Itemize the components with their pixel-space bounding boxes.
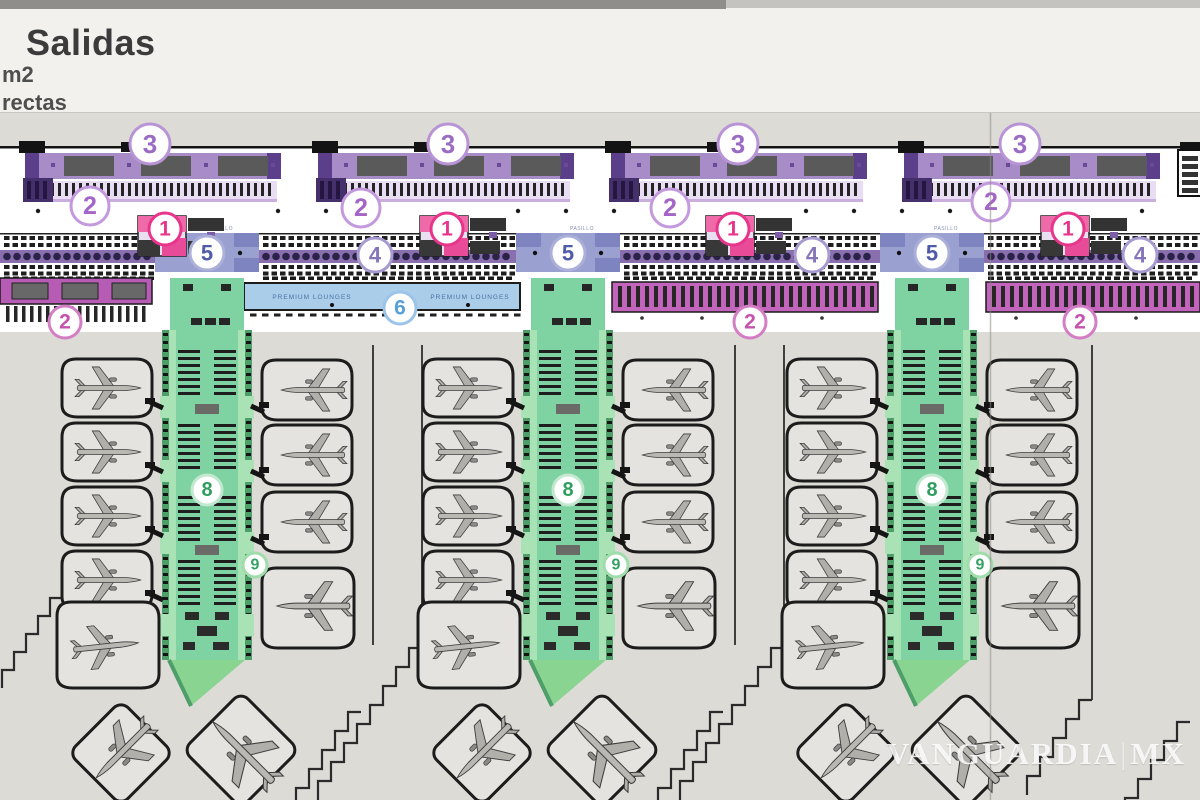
pier-edge-rung: [888, 581, 893, 584]
pier-counter: [940, 612, 954, 620]
pier-seat-row: [178, 517, 200, 520]
seat-row-mark: [658, 236, 664, 240]
queue-divider: [435, 183, 438, 196]
seat-row-mark: [1005, 243, 1011, 247]
seat-row-mark: [675, 243, 681, 247]
queue-divider: [958, 183, 961, 196]
pier-edge-rung: [971, 597, 976, 600]
seat-row-mark: [1167, 243, 1173, 247]
seat-row-mark: [658, 243, 664, 247]
zone-number-1: 1: [727, 218, 739, 241]
seat-row-mark: [735, 272, 741, 276]
seat-row-mark: [1073, 272, 1079, 276]
watermark-suffix: MX: [1130, 736, 1186, 771]
seating-base-dash: [1132, 277, 1138, 281]
pier-seat-row: [939, 588, 961, 591]
seating-column-dot: [863, 253, 871, 261]
pier-edge-rung: [607, 605, 612, 608]
lounge-wall-dash: [298, 314, 305, 317]
pier-seat-row: [575, 438, 597, 441]
pier-top-mark: [544, 284, 554, 291]
seating-base-dash: [867, 277, 873, 281]
seat-row-mark: [1005, 236, 1011, 240]
pier-seat-row: [539, 595, 561, 598]
seat-row-mark: [871, 243, 877, 247]
corridor-block: [959, 258, 984, 272]
checkin-divider-dot: [1006, 163, 1010, 167]
queue-divider: [693, 183, 696, 196]
queue-divider: [1112, 183, 1115, 196]
seat-row-mark: [726, 272, 732, 276]
pier-edge-rung: [888, 565, 893, 568]
seat-row-mark: [115, 272, 121, 276]
seat-row-mark: [1167, 265, 1173, 269]
seat-row-mark: [684, 265, 690, 269]
seat-row-mark: [633, 243, 639, 247]
pier-seat-row: [214, 452, 236, 455]
pier-seat-row: [214, 581, 236, 584]
zone-marker-2: 2: [71, 187, 109, 225]
seat-row-mark: [871, 265, 877, 269]
pier-top-mark: [944, 318, 955, 325]
seat-row-mark: [675, 236, 681, 240]
watermark-main: VANGUARDIA: [887, 736, 1118, 771]
lounge-wall-dash: [502, 314, 509, 317]
boarding-divider: [1100, 286, 1104, 307]
queue-divider: [1070, 183, 1073, 196]
checkin-sign-stripe: [35, 181, 39, 199]
seat-row-mark: [98, 265, 104, 269]
pier-edge-rung: [971, 421, 976, 424]
seat-row-mark: [760, 265, 766, 269]
seat-row-mark: [123, 265, 129, 269]
seating-column-dot: [103, 253, 111, 261]
seat-row-mark: [997, 243, 1003, 247]
checkin-divider-dot: [271, 163, 275, 167]
pier-seat-row: [178, 378, 200, 381]
pier-edge-rung: [888, 637, 893, 640]
boarding-divider: [1037, 286, 1041, 307]
zone-number-2: 2: [744, 311, 756, 334]
pier-edge-rung: [971, 605, 976, 608]
seat-row-mark: [408, 243, 414, 247]
corridor-block: [880, 233, 905, 247]
seat-row-mark: [132, 236, 138, 240]
queue-divider: [812, 183, 815, 196]
seat-row-mark: [399, 236, 405, 240]
seat-row-mark: [289, 243, 295, 247]
pier-edge-rung: [971, 637, 976, 640]
queue-divider: [763, 183, 766, 196]
pier-top-mark: [219, 318, 230, 325]
seat-row-mark: [115, 236, 121, 240]
pier-counter: [576, 612, 590, 620]
pier-seat-row: [903, 445, 925, 448]
pier-edge-rung: [971, 341, 976, 344]
pier-edge-rung: [888, 437, 893, 440]
seat-row-mark: [786, 272, 792, 276]
seat-row-mark: [21, 243, 27, 247]
seating-base-dash: [858, 277, 864, 281]
pier-seat-row: [214, 438, 236, 441]
pier-seat-row: [939, 503, 961, 506]
seat-row-mark: [692, 243, 698, 247]
seat-row-mark: [1090, 272, 1096, 276]
pier-edge-rung: [607, 581, 612, 584]
seat-row-mark: [416, 265, 422, 269]
zone-marker-3: 3: [428, 124, 468, 164]
zone-marker-5: 5: [190, 236, 224, 270]
seating-base-dash: [488, 277, 494, 281]
pier-light-strip: [238, 330, 245, 660]
queue-divider: [651, 183, 654, 196]
seat-row-mark: [650, 236, 656, 240]
seat-row-mark: [399, 265, 405, 269]
queue-divider: [135, 183, 138, 196]
seat-row-mark: [701, 236, 707, 240]
pier-edge-rung: [246, 381, 251, 384]
zone-number-6: 6: [394, 297, 406, 320]
seat-row-mark: [1022, 272, 1028, 276]
checkin-sign-stripe: [613, 181, 617, 199]
pier-edge-rung: [163, 573, 168, 576]
queue-divider: [819, 183, 822, 196]
seat-row-mark: [1192, 272, 1198, 276]
lounge-wall-dash: [478, 314, 485, 317]
boarding-dot: [1014, 316, 1018, 320]
seat-row-mark: [81, 272, 87, 276]
pier-edge-rung: [246, 365, 251, 368]
zone-marker-1: 1: [1052, 213, 1084, 245]
pier-seat-row: [214, 538, 236, 541]
seating-column-dot: [262, 253, 270, 261]
pier-seat-row: [903, 357, 925, 360]
seat-row-mark: [433, 265, 439, 269]
pier-edge-rung: [971, 653, 976, 656]
boarding-divider: [1064, 286, 1068, 307]
seat-row-mark: [115, 243, 121, 247]
checkin-divider-dot: [930, 163, 934, 167]
seat-row-mark: [641, 236, 647, 240]
pier-edge-rung: [888, 605, 893, 608]
seat-row-mark: [357, 236, 363, 240]
jet-bridge-cab: [620, 467, 630, 473]
pier-edge-rung: [888, 357, 893, 360]
corridor-block: [595, 258, 620, 272]
lounge-wall-dash: [490, 314, 497, 317]
boarding-dot: [640, 316, 644, 320]
pier-seat-row: [903, 538, 925, 541]
pier-seat-row: [539, 364, 561, 367]
checkin-divider-dot: [790, 163, 794, 167]
boarding-divider: [1010, 286, 1014, 307]
pier-edge-rung: [524, 373, 529, 376]
seat-row-mark: [55, 236, 61, 240]
pier-edge-rung: [607, 653, 612, 656]
kiosk-lane: [756, 218, 792, 231]
queue-divider: [944, 183, 947, 196]
pier-counter: [213, 642, 229, 650]
queue-divider: [554, 183, 557, 196]
lounge-wall-dash: [442, 314, 449, 317]
queue-divider: [386, 183, 389, 196]
pier-seat-row: [939, 385, 961, 388]
seating-column-dot: [402, 253, 410, 261]
pier-edge-rung: [971, 349, 976, 352]
pier-edge-rung: [524, 501, 529, 504]
kiosk-lane: [470, 218, 506, 231]
seating-base-dash: [669, 277, 675, 281]
pier-edge-rung: [888, 349, 893, 352]
pier-seat-row: [903, 524, 925, 527]
seating-column-dot: [997, 253, 1005, 261]
pier-edge-rung: [888, 525, 893, 528]
pier-seat-row: [178, 574, 200, 577]
column-dot: [948, 209, 952, 213]
zone-number-8: 8: [926, 479, 937, 501]
boarding-divider: [663, 286, 667, 307]
queue-divider: [456, 183, 459, 196]
pier-edge-rung: [246, 645, 251, 648]
lounge-wall-dash: [514, 314, 521, 317]
seating-base-dash: [461, 277, 467, 281]
checkin-endcap: [318, 153, 332, 179]
pier-top-mark: [916, 318, 927, 325]
pier-edge-rung: [246, 445, 251, 448]
seat-row-mark: [442, 265, 448, 269]
queue-divider: [149, 183, 152, 196]
jet-bridge-cab: [259, 402, 269, 408]
facade-door: [605, 141, 631, 153]
pier-edge-rung: [888, 485, 893, 488]
seating-base-dash: [1015, 277, 1021, 281]
seat-row-mark: [1031, 265, 1037, 269]
boarding-divider: [771, 286, 775, 307]
pier-edge-rung: [163, 637, 168, 640]
seat-row-mark: [837, 236, 843, 240]
screenshot-root: PASILLOPASILLOPASILLOPREMIUM LOUNGESPREM…: [0, 0, 1200, 800]
pier-edge-rung: [163, 485, 168, 488]
pier-edge-rung: [246, 581, 251, 584]
pier-seat-row: [214, 588, 236, 591]
subtitle-line-m2: m2: [2, 62, 34, 88]
pier-seat-row: [575, 385, 597, 388]
boarding-divider: [1136, 286, 1140, 307]
seat-row-mark: [89, 236, 95, 240]
seat-row-mark: [357, 272, 363, 276]
seat-row-mark: [47, 265, 53, 269]
seat-row-mark: [709, 265, 715, 269]
boarding-divider: [618, 286, 622, 307]
lounge-wall-dash: [430, 314, 437, 317]
seat-row-mark: [459, 272, 465, 276]
jet-bridge-cab: [506, 526, 516, 532]
column-dot: [900, 209, 904, 213]
zone-number-5: 5: [926, 241, 938, 266]
queue-divider: [840, 183, 843, 196]
seat-row-mark: [4, 265, 10, 269]
checkin-sign-stripe: [27, 181, 31, 199]
boarding-divider: [753, 286, 757, 307]
pier-edge-rung: [888, 453, 893, 456]
lounge-wall-dash: [286, 314, 293, 317]
seating-column-dot: [1177, 253, 1185, 261]
seating-column-dot: [53, 253, 61, 261]
seating-base-dash: [1042, 277, 1048, 281]
seating-column-dot: [83, 253, 91, 261]
jetbridge-tab: [160, 614, 169, 636]
seat-row-mark: [476, 265, 482, 269]
queue-divider: [254, 183, 257, 196]
pier-edge-rung: [971, 509, 976, 512]
seating-base-dash: [633, 277, 639, 281]
queue-divider: [1147, 183, 1150, 196]
queue-divider: [219, 183, 222, 196]
pier-seat-row: [575, 602, 597, 605]
checkin-sign-block: [609, 178, 639, 202]
seat-row-mark: [828, 272, 834, 276]
queue-divider: [114, 183, 117, 196]
pier-edge-rung: [246, 341, 251, 344]
queue-divider: [407, 183, 410, 196]
pier-edge-rung: [888, 493, 893, 496]
pier-seat-row: [178, 510, 200, 513]
seat-row-mark: [1158, 236, 1164, 240]
seat-row-mark: [30, 236, 36, 240]
seating-base-dash: [506, 277, 512, 281]
header-top-strip-light: [726, 0, 1200, 8]
pier-edge-rung: [607, 333, 612, 336]
seat-row-mark: [510, 265, 516, 269]
seating-column-dot: [843, 253, 851, 261]
seating-base-dash: [813, 277, 819, 281]
pier-edge-rung: [971, 333, 976, 336]
queue-area: [29, 181, 277, 202]
seating-base-dash: [299, 277, 305, 281]
pier-seat-row: [575, 364, 597, 367]
seat-row-mark: [1107, 272, 1113, 276]
pier-seat-row: [214, 503, 236, 506]
jet-bridge-cab: [506, 590, 516, 596]
pier-seat-row: [903, 503, 925, 506]
pier-seat-row: [178, 431, 200, 434]
pier-edge-rung: [163, 365, 168, 368]
seat-row-mark: [1175, 272, 1181, 276]
queue-divider: [519, 183, 522, 196]
seat-row-mark: [1175, 236, 1181, 240]
seat-row-mark: [30, 265, 36, 269]
seat-row-mark: [280, 236, 286, 240]
seat-row-mark: [1167, 236, 1173, 240]
boarding-divider: [1046, 286, 1050, 307]
pier-counter: [183, 642, 195, 650]
jet-bridge-cab: [984, 402, 994, 408]
pier-edge-rung: [246, 501, 251, 504]
column-dot: [276, 209, 280, 213]
seat-row-mark: [786, 236, 792, 240]
boarding-divider: [1073, 286, 1077, 307]
pier-seat-row: [939, 438, 961, 441]
seat-row-mark: [1048, 272, 1054, 276]
pier-seat-row: [539, 517, 561, 520]
boarding-divider: [134, 306, 138, 322]
boarding-divider: [717, 286, 721, 307]
zone-marker-3: 3: [1000, 124, 1040, 164]
seat-row-mark: [433, 272, 439, 276]
seat-row-mark: [1082, 265, 1088, 269]
pier-edge-rung: [524, 437, 529, 440]
boarding-counter: [12, 283, 48, 299]
checkin-sign-block: [902, 178, 932, 202]
premium-lounges-label: PREMIUM LOUNGES: [430, 294, 509, 301]
edge-structure-row: [1182, 188, 1198, 193]
seat-row-mark: [306, 236, 312, 240]
seat-row-mark: [828, 236, 834, 240]
seat-row-mark: [399, 243, 405, 247]
pier-seat-row: [539, 588, 561, 591]
seating-base-dash: [714, 277, 720, 281]
kiosk-marker: [489, 232, 497, 238]
pier-seat-row: [575, 452, 597, 455]
pier-edge-rung: [971, 589, 976, 592]
seat-row-mark: [289, 236, 295, 240]
queue-divider: [58, 183, 61, 196]
seat-row-mark: [1184, 272, 1190, 276]
pier-seat-row: [178, 385, 200, 388]
queue-divider: [833, 183, 836, 196]
pier-edge-rung: [163, 493, 168, 496]
seat-row-mark: [64, 243, 70, 247]
seat-row-mark: [862, 243, 868, 247]
queue-divider: [644, 183, 647, 196]
seat-row-mark: [38, 236, 44, 240]
seat-row-mark: [467, 272, 473, 276]
pier-edge-rung: [607, 509, 612, 512]
seat-row-mark: [323, 243, 329, 247]
seat-row-mark: [340, 265, 346, 269]
boarding-divider: [834, 286, 838, 307]
seat-row-mark: [38, 272, 44, 276]
pier-counter: [558, 626, 578, 636]
seating-base-dash: [344, 277, 350, 281]
lounge-wall-dash: [250, 314, 257, 317]
seating-base-dash: [380, 277, 386, 281]
pier-edge-rung: [971, 389, 976, 392]
pier-seat-row: [214, 445, 236, 448]
jetbridge-tab: [245, 614, 254, 636]
lounge-wall-dash: [274, 314, 281, 317]
seat-row-mark: [641, 265, 647, 269]
zone-marker-3: 3: [130, 124, 170, 164]
corridor-dot: [963, 251, 967, 255]
edge-structure-row: [1182, 156, 1198, 161]
seat-row-mark: [297, 272, 303, 276]
pier-seat-row: [939, 445, 961, 448]
pier-seat-row: [178, 531, 200, 534]
seat-row-mark: [743, 265, 749, 269]
column-dot: [612, 209, 616, 213]
seat-row-mark: [1031, 236, 1037, 240]
pier-edge-rung: [246, 653, 251, 656]
seat-row-mark: [55, 243, 61, 247]
pier-seat-row: [575, 459, 597, 462]
pier-edge-rung: [888, 653, 893, 656]
queue-divider: [728, 183, 731, 196]
pier-top-mark: [221, 284, 231, 291]
pier-edge-rung: [971, 485, 976, 488]
pier-top-mark: [191, 318, 202, 325]
pier-seat-row: [539, 357, 561, 360]
